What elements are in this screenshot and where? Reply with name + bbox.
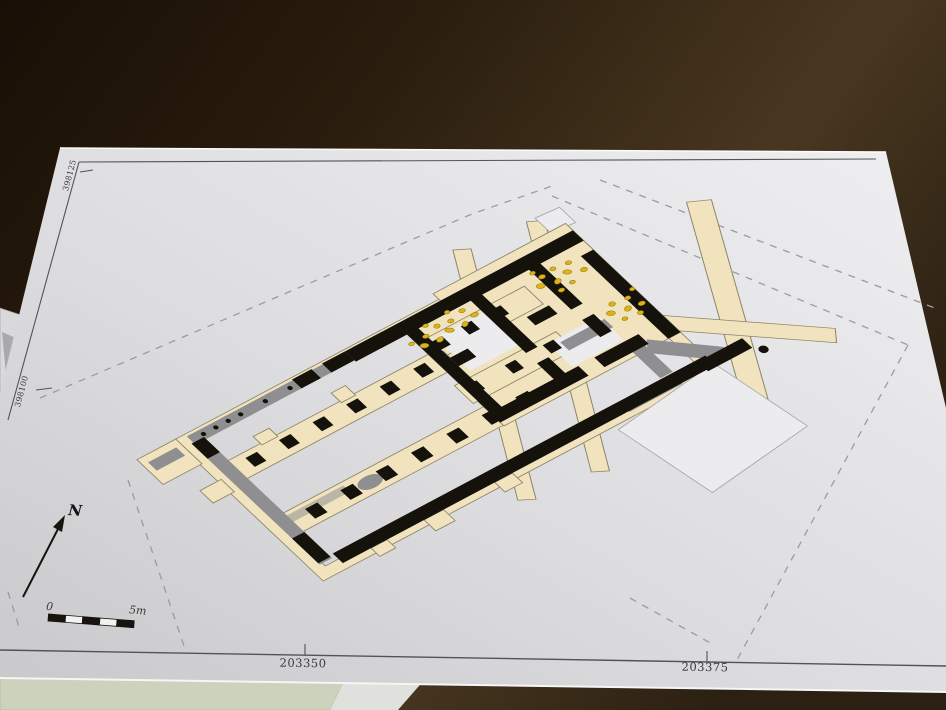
scale-bar-zero-label: 0 xyxy=(46,600,54,614)
scale-bar-end-label: 5m xyxy=(129,603,147,617)
north-arrow-label: N xyxy=(67,501,84,520)
rendered-plan-scene: 203350 203375 398100 398125 xyxy=(0,0,946,710)
easting-label-1: 203350 xyxy=(279,656,326,671)
site-plan-canvas: 203350 203375 398100 398125 xyxy=(0,0,946,710)
easting-label-2: 203375 xyxy=(681,660,728,675)
